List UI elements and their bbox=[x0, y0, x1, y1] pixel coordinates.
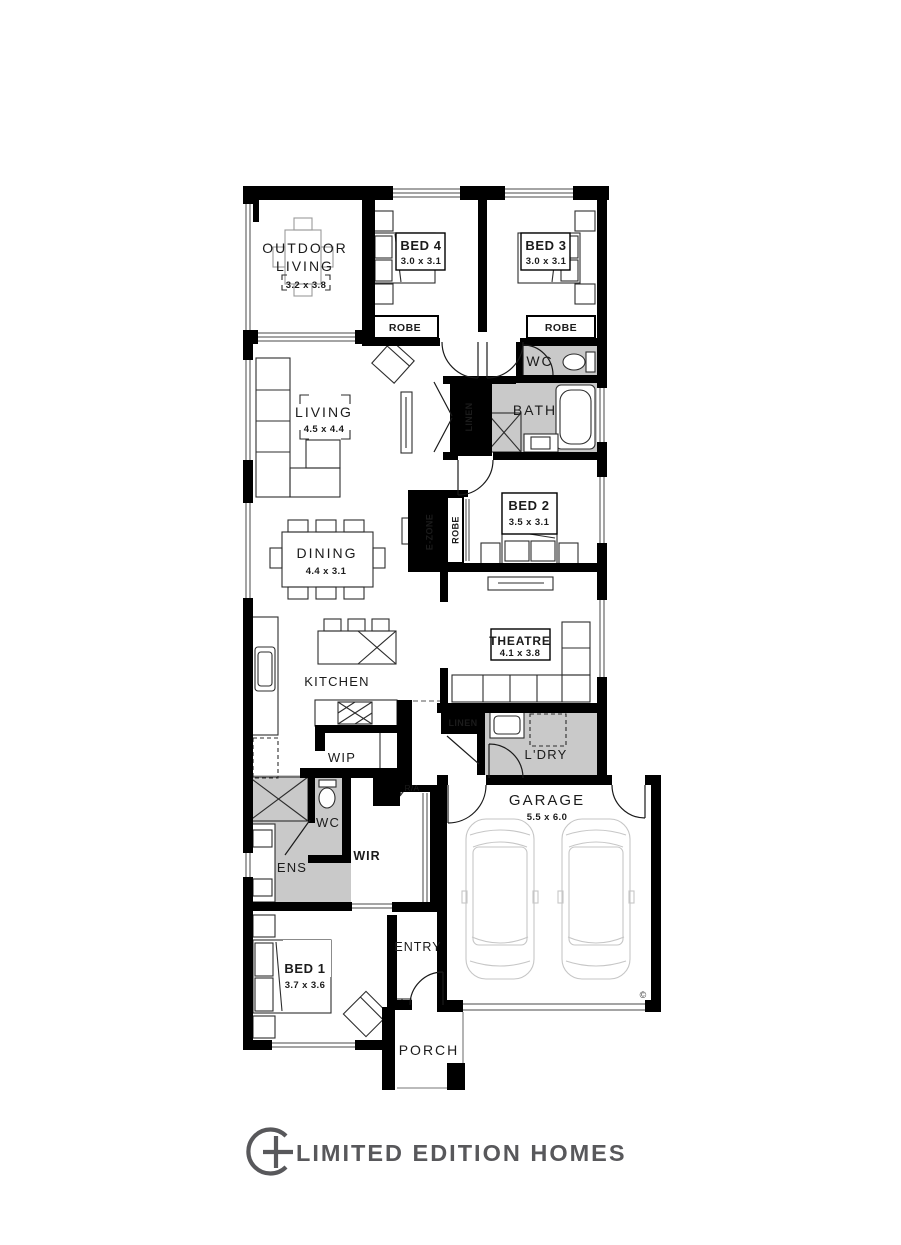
bed3-dims: 3.0 x 3.1 bbox=[526, 256, 567, 267]
bed3-label: BED 3 bbox=[525, 238, 566, 253]
living-dims: 4.5 x 4.4 bbox=[304, 424, 345, 435]
robe-bed4-label: ROBE bbox=[389, 322, 421, 334]
theatre-dims: 4.1 x 3.8 bbox=[500, 648, 541, 659]
garage-dims: 5.5 x 6.0 bbox=[527, 812, 568, 823]
laundry-label: L'DRY bbox=[525, 747, 568, 762]
wir-label: WIR bbox=[353, 849, 380, 863]
outdoor-living-dims: 3.2 x 3.8 bbox=[286, 280, 327, 291]
bed1-dims: 3.7 x 3.6 bbox=[285, 980, 326, 991]
entry-label: ENTRY bbox=[394, 940, 441, 954]
wir-shelves bbox=[423, 793, 427, 908]
wc-ens-label: WC bbox=[316, 815, 340, 830]
bath-label: BATH bbox=[513, 402, 557, 418]
bed1-label: BED 1 bbox=[284, 961, 325, 976]
theatre-label: THEATRE bbox=[489, 634, 550, 648]
linen-hall-label: LINEN bbox=[449, 718, 478, 728]
porch-label: PORCH bbox=[399, 1042, 460, 1058]
bed2-door bbox=[458, 460, 493, 495]
ezone-label: E-ZONE bbox=[425, 514, 435, 550]
circle-plus-icon bbox=[248, 1130, 293, 1174]
garage-label: GARAGE bbox=[509, 792, 585, 809]
brand-name: LIMITED EDITION HOMES bbox=[296, 1140, 627, 1166]
kitchen-label: KITCHEN bbox=[304, 674, 369, 689]
outdoor-living-label-1: OUTDOOR bbox=[262, 240, 348, 256]
robe-bed2-label: ROBE bbox=[451, 516, 461, 544]
garage-internal-door bbox=[448, 785, 486, 823]
garage-side-door bbox=[612, 785, 645, 818]
wc-rear-label: WC bbox=[526, 353, 553, 369]
dining-dims: 4.4 x 3.1 bbox=[306, 566, 347, 577]
bed2-label: BED 2 bbox=[508, 498, 549, 513]
return-air-label: R/A bbox=[404, 783, 419, 793]
brand-logo: LIMITED EDITION HOMES bbox=[248, 1130, 626, 1174]
dining-label: DINING bbox=[297, 545, 358, 561]
car-left bbox=[462, 819, 538, 979]
bed4-label: BED 4 bbox=[400, 238, 441, 253]
robe2-slider bbox=[466, 499, 469, 561]
floorplan-canvas: OUTDOOR LIVING 3.2 x 3.8 BED 4 3.0 x 3.1… bbox=[0, 0, 901, 1245]
bed4-door bbox=[442, 342, 478, 378]
kitchen-fixtures bbox=[252, 617, 398, 778]
floorplan-page: OUTDOOR LIVING 3.2 x 3.8 BED 4 3.0 x 3.1… bbox=[0, 0, 901, 1245]
copyright-mark: © bbox=[640, 990, 647, 1000]
linen-hall-door bbox=[447, 736, 479, 764]
ens-label: ENS bbox=[277, 860, 307, 875]
bed2-dims: 3.5 x 3.1 bbox=[509, 517, 550, 528]
living-label: LIVING bbox=[295, 404, 353, 420]
outdoor-living-label-2: LIVING bbox=[276, 258, 334, 274]
wip-label: WIP bbox=[328, 750, 356, 765]
car-right bbox=[558, 819, 634, 979]
linen-bath-doors bbox=[434, 382, 452, 452]
bed4-dims: 3.0 x 3.1 bbox=[401, 256, 442, 267]
robe-bed3-label: ROBE bbox=[545, 322, 577, 334]
linen-bath-label: LINEN bbox=[464, 403, 474, 432]
